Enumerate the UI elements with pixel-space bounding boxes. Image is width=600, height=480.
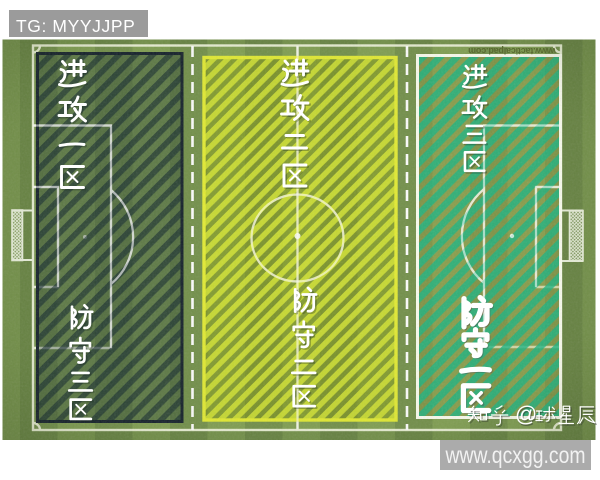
svg-text:TG: MYYJJPP: TG: MYYJJPP: [16, 16, 135, 36]
svg-text:www.tacticalpad.com: www.tacticalpad.com: [468, 46, 557, 56]
svg-text:@: @: [515, 402, 537, 427]
svg-text:www.qcxgg.com: www.qcxgg.com: [445, 442, 586, 468]
